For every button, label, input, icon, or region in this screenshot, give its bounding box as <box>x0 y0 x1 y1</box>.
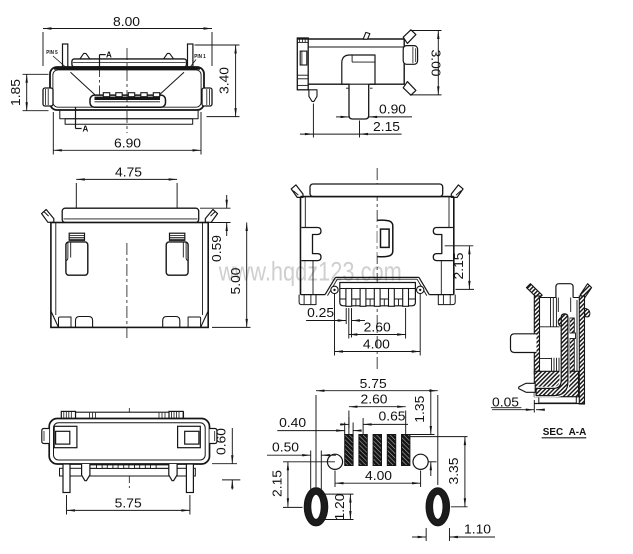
svg-text:0.40: 0.40 <box>279 415 306 430</box>
svg-text:5.75: 5.75 <box>360 376 387 391</box>
svg-text:3.35: 3.35 <box>446 458 461 485</box>
svg-text:0.05: 0.05 <box>492 394 519 409</box>
svg-text:2.15: 2.15 <box>373 119 400 134</box>
svg-text:2.60: 2.60 <box>364 319 391 334</box>
svg-text:A: A <box>83 125 89 134</box>
svg-text:PIN 1: PIN 1 <box>194 54 206 60</box>
svg-text:4.75: 4.75 <box>115 165 142 180</box>
svg-text:4.00: 4.00 <box>363 336 390 351</box>
svg-text:SEC A-A: SEC A-A <box>543 427 587 438</box>
svg-text:A: A <box>106 51 112 60</box>
svg-text:2.15: 2.15 <box>269 470 284 497</box>
svg-text:8.00: 8.00 <box>113 14 140 29</box>
svg-text:PIN 5: PIN 5 <box>46 50 58 56</box>
svg-text:4.00: 4.00 <box>365 468 392 483</box>
svg-text:2.60: 2.60 <box>361 392 388 407</box>
svg-text:0.65: 0.65 <box>379 409 406 424</box>
svg-text:0.90: 0.90 <box>379 102 406 117</box>
svg-text:0.50: 0.50 <box>272 440 299 455</box>
svg-text:0.59: 0.59 <box>209 235 224 262</box>
svg-text:3.40: 3.40 <box>216 67 231 94</box>
svg-text:6.90: 6.90 <box>114 136 141 151</box>
svg-text:0.60: 0.60 <box>214 428 229 455</box>
svg-text:5.00: 5.00 <box>228 268 243 295</box>
svg-text:1.35: 1.35 <box>412 396 427 423</box>
svg-text:1.85: 1.85 <box>8 79 23 106</box>
svg-text:1.20: 1.20 <box>332 494 347 521</box>
svg-text:2.15: 2.15 <box>451 253 466 280</box>
svg-text:5.75: 5.75 <box>115 495 142 510</box>
svg-text:0.25: 0.25 <box>307 305 334 320</box>
svg-text:1.10: 1.10 <box>464 521 491 536</box>
svg-text:3.00: 3.00 <box>428 50 443 77</box>
